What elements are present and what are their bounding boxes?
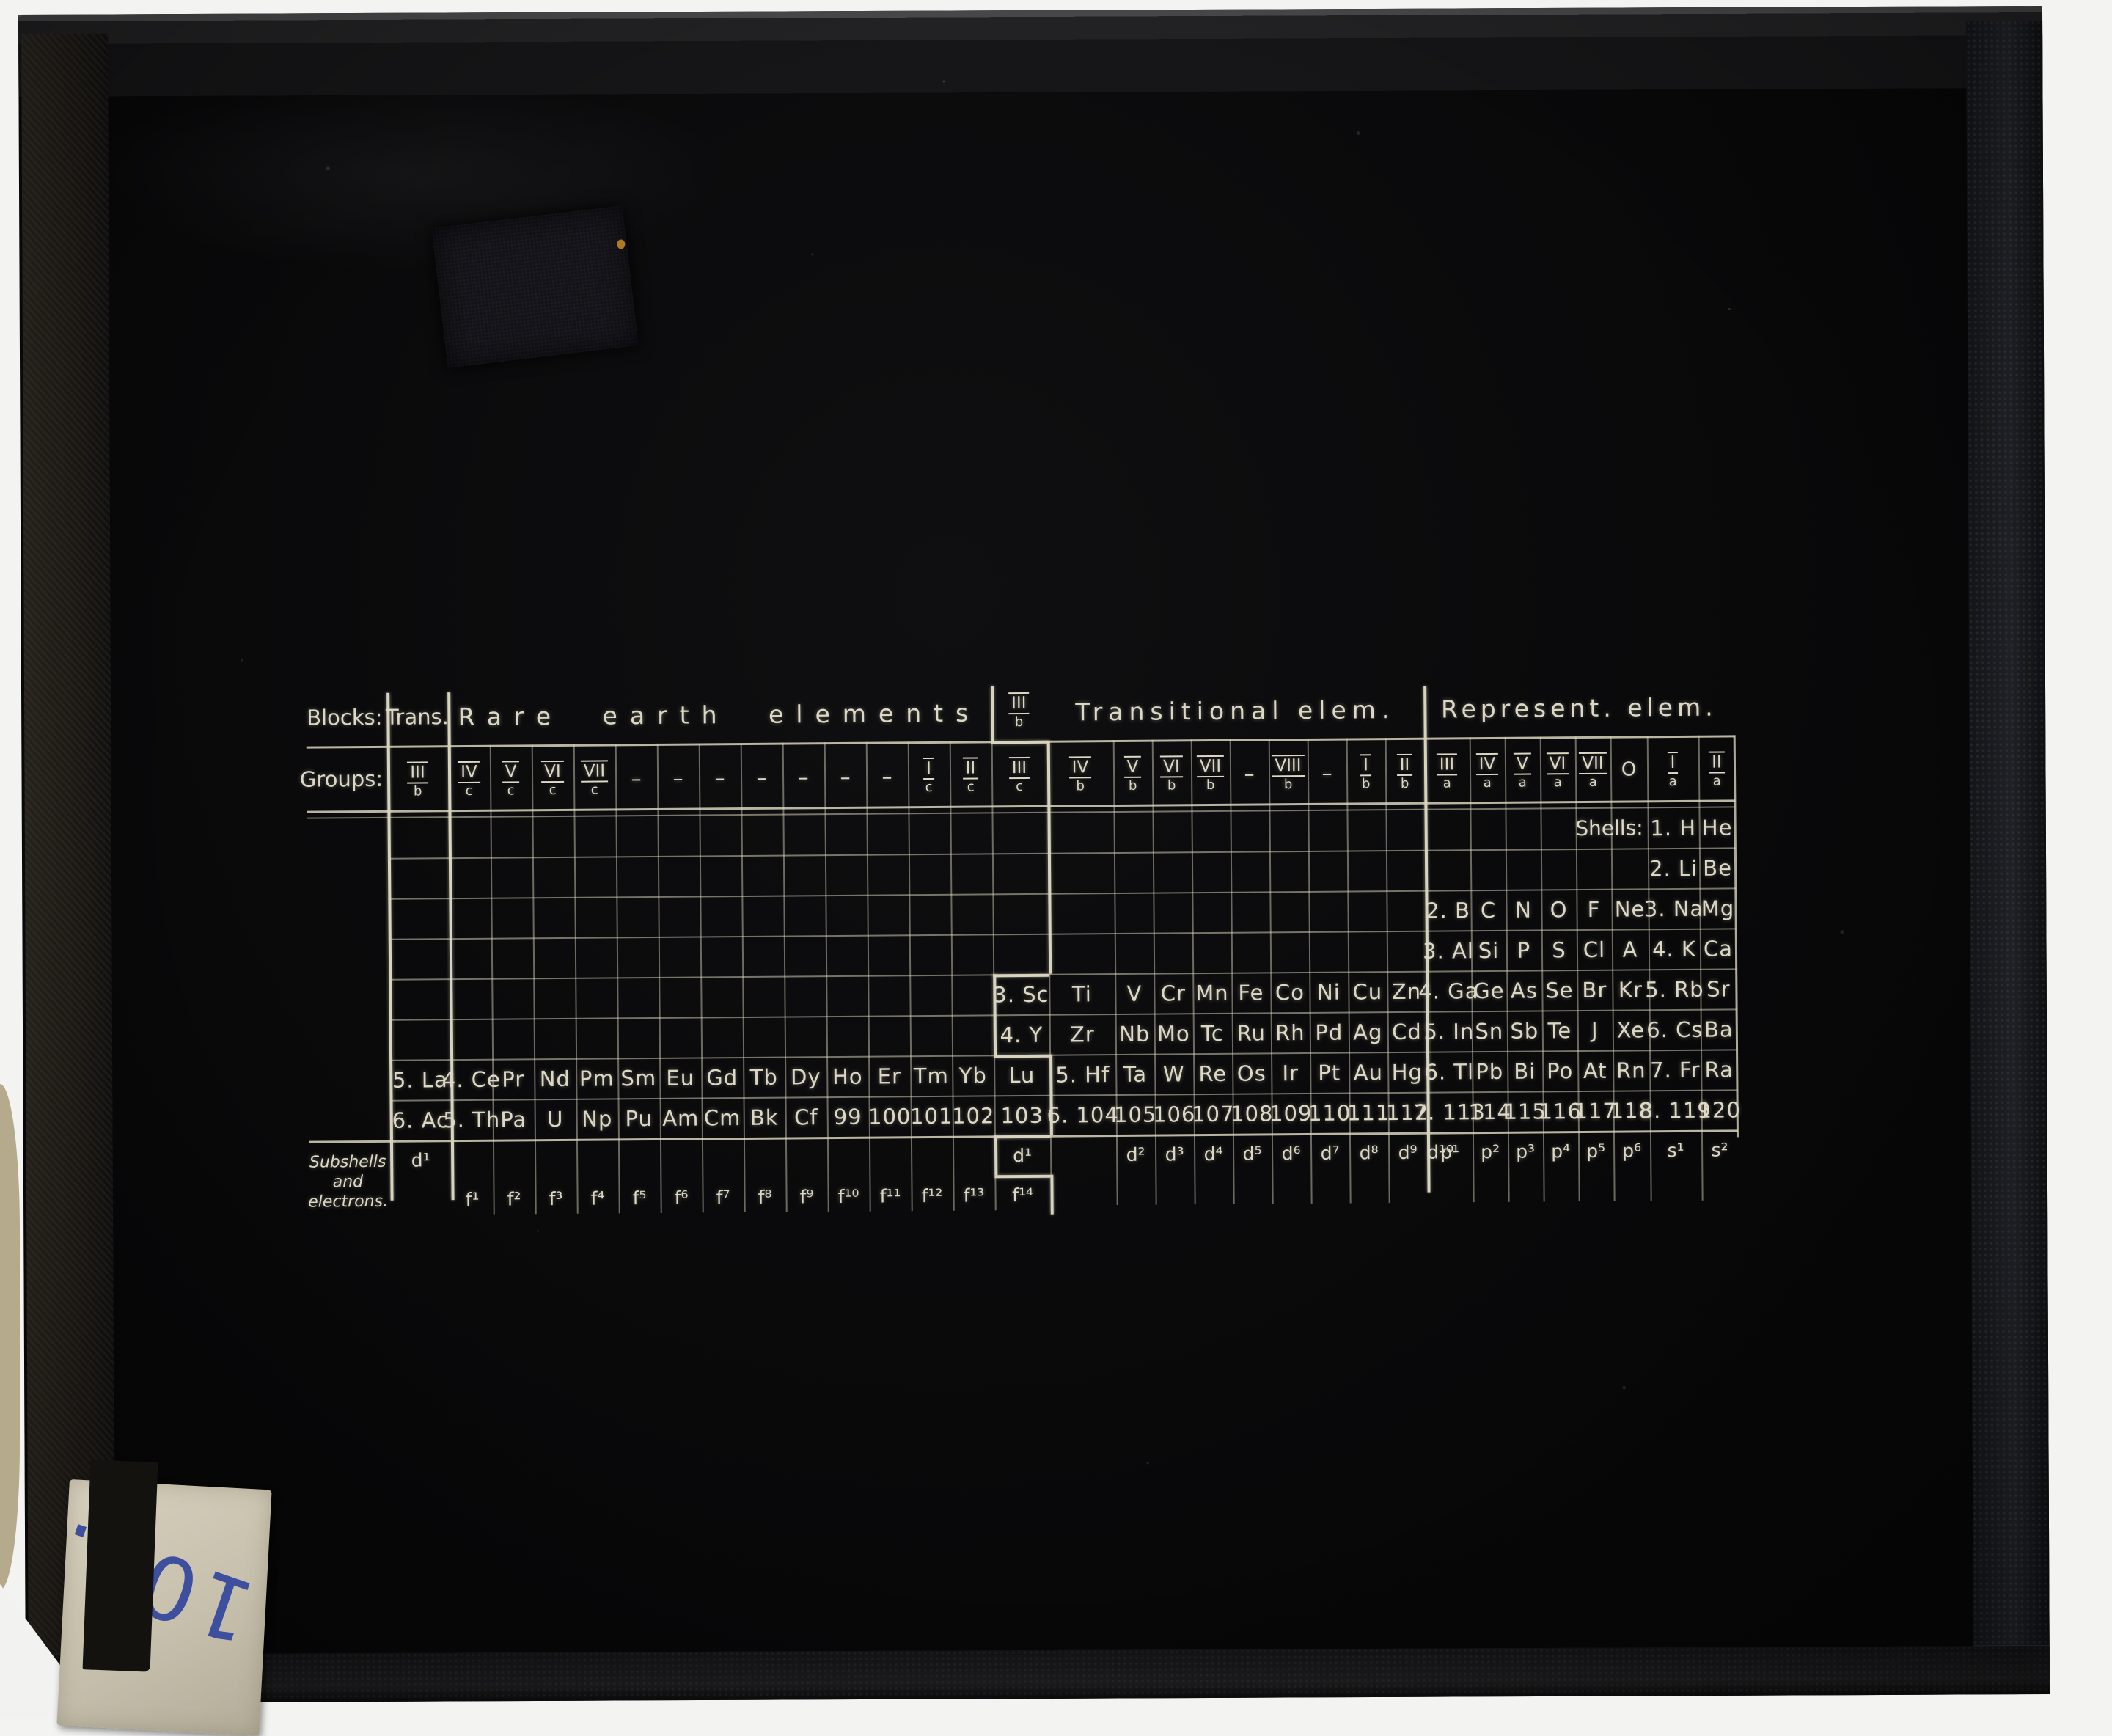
group-cell: – <box>741 743 783 812</box>
subshell-cell: s² <box>1701 1129 1738 1169</box>
element-cell: F <box>1576 889 1611 929</box>
element-cell: Sm <box>617 1058 659 1098</box>
groups-label: Groups: <box>307 746 384 813</box>
subshell-cell: p³ <box>1508 1131 1543 1171</box>
group-numeral: – <box>881 764 892 788</box>
group-cell: VIIb <box>1191 739 1231 808</box>
element-cell: Bi <box>1507 1050 1542 1091</box>
gridline <box>1050 1175 1053 1215</box>
element-cell: 100 <box>869 1096 911 1136</box>
element-cell: 2. B <box>1425 890 1470 930</box>
subshell-cell: d⁵ <box>1233 1133 1272 1173</box>
tape-over-sticker <box>83 1460 158 1671</box>
group-numeral: – <box>1321 761 1332 785</box>
element-cell: 99 <box>827 1096 869 1137</box>
group-numeral: IV <box>458 761 480 783</box>
element-cell: 105 <box>1115 1094 1154 1135</box>
element-cell: C <box>1470 890 1506 930</box>
element-cell: Mo <box>1154 1013 1193 1053</box>
group-numeral: III <box>407 761 428 783</box>
subshells-label-line: and <box>333 1172 364 1192</box>
element-cell: 116 <box>1542 1091 1577 1131</box>
group-cell: IIb <box>1385 738 1425 807</box>
group-letter: a <box>1589 776 1597 789</box>
group-letter: c <box>1016 780 1023 794</box>
element-cell: Eu <box>659 1057 701 1097</box>
element-cell: Kr <box>1612 969 1649 1009</box>
group-numeral: – <box>840 764 850 788</box>
group-cell: VIc <box>532 744 574 813</box>
group-numeral: O <box>1620 760 1638 781</box>
element-cell: Pb <box>1472 1051 1507 1091</box>
element-cell: 5. Th <box>451 1099 493 1140</box>
subshell-cell: p⁵ <box>1578 1131 1613 1171</box>
element-cell: Cl <box>1577 929 1612 970</box>
group-numeral: VIII <box>1272 755 1304 777</box>
group-numeral: – <box>672 766 683 790</box>
shells-label: Shells: <box>1540 807 1643 849</box>
element-cell: Yb <box>952 1055 994 1095</box>
element-cell: 2. Li <box>1648 848 1699 889</box>
subshell-cell: p⁶ <box>1613 1130 1650 1170</box>
group-cell: Va <box>1505 736 1541 805</box>
subshell-cell: p⁴ <box>1543 1131 1578 1171</box>
element-cell: 115 <box>1507 1091 1542 1131</box>
group-numeral: V <box>1123 756 1141 778</box>
group-cell: VIa <box>1540 736 1576 805</box>
block-title-represent: Represent. elem. <box>1423 680 1735 735</box>
element-cell: Pu <box>618 1098 660 1138</box>
element-cell: 5. In <box>1426 1011 1472 1051</box>
element-cell: 108 <box>1232 1093 1271 1133</box>
group-numeral: IV <box>1476 753 1499 775</box>
group-cell: – <box>657 743 700 812</box>
element-cell: Cf <box>785 1096 827 1137</box>
subshell-cell: f¹⁴ <box>994 1175 1050 1215</box>
group-letter: b <box>1076 780 1085 793</box>
element-cell: Er <box>868 1055 910 1096</box>
element-cell: Ra <box>1701 1049 1737 1089</box>
group-cell: IIIc <box>991 741 1048 810</box>
element-cell: Ca <box>1700 928 1737 968</box>
group-letter: b <box>1401 777 1409 791</box>
element-cell: V <box>1115 973 1154 1014</box>
element-cell: Rh <box>1271 1012 1310 1052</box>
group-cell: IIc <box>950 741 992 810</box>
element-cell: Cr <box>1154 973 1192 1013</box>
group-cell: Vc <box>490 744 532 813</box>
element-cell: 109 <box>1271 1093 1310 1133</box>
subshell-cell: d⁴ <box>1194 1134 1233 1173</box>
group-letter: a <box>1669 775 1677 788</box>
subshell-cell: d⁷ <box>1310 1133 1349 1173</box>
group-numeral: VII <box>1579 752 1607 774</box>
subshell-cell: d⁶ <box>1272 1133 1310 1173</box>
element-cell: Ti <box>1049 973 1115 1014</box>
element-cell: 3. Na <box>1648 888 1699 929</box>
element-cell: 6. 104 <box>1049 1094 1115 1135</box>
element-cell: Ru <box>1232 1012 1271 1052</box>
element-cell: 8. 119 <box>1649 1090 1701 1131</box>
group-numeral: – <box>631 766 641 791</box>
subshell-cell: f⁷ <box>702 1177 744 1217</box>
subshell-cell: d⁸ <box>1349 1132 1388 1172</box>
element-cell: Co <box>1270 972 1309 1012</box>
group-numeral: – <box>714 766 725 790</box>
element-cell: N <box>1506 889 1541 929</box>
subshell-cell: f¹ <box>451 1179 493 1219</box>
element-cell: Pt <box>1310 1052 1349 1093</box>
group-letter: c <box>591 784 598 797</box>
element-cell: 102 <box>952 1095 994 1135</box>
group-cell: IVc <box>448 745 491 814</box>
element-cell: Mn <box>1192 973 1231 1013</box>
subshell-cell: f¹¹ <box>869 1176 911 1215</box>
group-letter: b <box>414 785 422 798</box>
element-cell: At <box>1577 1050 1613 1091</box>
group-cell: – <box>1308 739 1347 807</box>
group-cell: – <box>866 741 909 810</box>
element-cell: Be <box>1699 847 1736 887</box>
group-numeral: III <box>1437 753 1458 775</box>
element-cell: 6. Tl <box>1426 1051 1472 1091</box>
group-numeral: V <box>1514 752 1531 774</box>
element-cell: 4. Ce <box>450 1059 492 1099</box>
subshell-cell: f² <box>493 1179 535 1218</box>
subshells-label-line: Subshells <box>309 1151 386 1172</box>
subshell-cell: f⁸ <box>744 1177 785 1217</box>
subshell-cell: s¹ <box>1650 1130 1701 1171</box>
group-letter: c <box>466 785 473 798</box>
element-cell: 110 <box>1310 1093 1349 1133</box>
element-cell: Ni <box>1309 972 1348 1012</box>
group-letter: a <box>1443 777 1451 790</box>
element-cell: 3. Sc <box>993 974 1049 1015</box>
group-letter: b <box>1015 716 1024 729</box>
group-numeral: – <box>1244 761 1254 785</box>
element-cell: Lu <box>994 1055 1049 1096</box>
element-cell: Os <box>1232 1052 1271 1093</box>
group-letter: a <box>1554 776 1562 789</box>
element-cell: Mg <box>1699 887 1736 928</box>
element-cell: Sn <box>1472 1011 1507 1051</box>
element-cell: He <box>1698 807 1735 847</box>
group-numeral: – <box>798 765 808 789</box>
group-cell: O <box>1610 736 1648 805</box>
element-cell: Ta <box>1115 1054 1154 1094</box>
element-cell: Nd <box>534 1058 576 1099</box>
subshell-cell: f¹³ <box>953 1175 994 1215</box>
group-cell: IVa <box>1470 737 1506 806</box>
group-numeral: V <box>502 761 520 783</box>
block-title-rare-earth: Rare earth elements <box>447 686 991 743</box>
subshell-cell: f¹⁰ <box>827 1176 869 1216</box>
group-cell: – <box>615 744 658 813</box>
group-letter: b <box>1167 779 1176 792</box>
element-cell: Tc <box>1193 1013 1232 1053</box>
element-cell: 4. K <box>1649 929 1700 970</box>
subshell-cell: p² <box>1473 1132 1508 1171</box>
element-cell: Po <box>1542 1050 1577 1091</box>
group-letter: b <box>1284 778 1293 791</box>
subshell-cell: d⁹ <box>1388 1132 1427 1172</box>
group-cell: IIIa <box>1424 737 1470 806</box>
element-cell: 101 <box>911 1096 953 1136</box>
element-cell: Np <box>576 1098 618 1138</box>
element-cell: P <box>1506 929 1541 970</box>
element-cell: Sb <box>1507 1010 1542 1050</box>
element-cell: O <box>1541 889 1576 929</box>
element-cell: Te <box>1542 1010 1577 1050</box>
group-letter: b <box>1206 779 1215 792</box>
group-numeral: II <box>963 757 979 779</box>
element-cell: 111 <box>1349 1092 1387 1132</box>
group-numeral: VII <box>1197 755 1225 777</box>
group-numeral: I <box>1360 754 1371 776</box>
group-letter: a <box>1484 777 1492 790</box>
group-numeral: IV <box>1069 756 1092 778</box>
group-numeral: VI <box>1547 752 1569 774</box>
element-cell: 3. Al <box>1426 930 1471 970</box>
subshell-cell: f⁴ <box>576 1178 618 1217</box>
element-cell: 6. Cs <box>1649 1009 1701 1050</box>
group-letter: a <box>1519 777 1527 790</box>
element-cell: Xe <box>1613 1009 1649 1050</box>
paper-sliver <box>0 1084 20 1590</box>
element-cell: 114 <box>1472 1091 1507 1132</box>
group-letter: c <box>967 781 975 794</box>
element-cell: Ba <box>1701 1008 1737 1049</box>
element-cell: Nb <box>1115 1014 1154 1054</box>
element-cell: 4. Ga <box>1426 970 1471 1011</box>
element-cell: A <box>1612 929 1649 969</box>
group-numeral: – <box>756 765 766 789</box>
subshell-cell: d¹ <box>390 1140 451 1180</box>
subshell-cell: f⁵ <box>618 1178 660 1217</box>
periodic-table-diagram: Blocks:Trans.Rare earth elementsIIIbTran… <box>306 676 1739 1234</box>
element-cell: Ho <box>826 1056 868 1096</box>
element-cell: Pm <box>576 1058 617 1098</box>
element-cell: J <box>1577 1010 1613 1050</box>
block-title-transitional: Transitional elem. <box>1046 683 1424 739</box>
element-cell: W <box>1154 1053 1193 1094</box>
subshell-cell: d³ <box>1155 1134 1194 1173</box>
element-cell: Sr <box>1700 968 1737 1008</box>
group-numeral: VII <box>581 760 609 782</box>
element-cell: Pa <box>493 1099 535 1139</box>
element-cell: Gd <box>701 1057 743 1097</box>
subshell-cell: f³ <box>535 1179 576 1218</box>
element-cell: Hg <box>1387 1052 1426 1092</box>
group-letter: c <box>507 784 515 797</box>
group-cell: VIb <box>1152 739 1192 808</box>
subshell-cell: p¹ <box>1427 1132 1473 1171</box>
group-letter: c <box>549 784 557 797</box>
element-cell: Zr <box>1049 1014 1115 1055</box>
group-numeral: III <box>1009 757 1030 779</box>
gridline <box>388 847 1736 859</box>
element-cell: Bk <box>744 1097 785 1138</box>
element-cell: 4. Y <box>994 1014 1049 1055</box>
element-cell: 7. 113 <box>1426 1091 1472 1132</box>
group-cell: – <box>782 742 825 811</box>
group-cell: Ia <box>1647 736 1699 805</box>
element-cell: Ag <box>1349 1011 1387 1052</box>
element-cell: 7. Fr <box>1649 1050 1701 1091</box>
group-numeral: II <box>1397 754 1413 776</box>
group-cell: Ic <box>908 741 950 810</box>
subshells-label: Subshellsandelectrons. <box>309 1146 386 1217</box>
element-cell: S <box>1541 929 1577 970</box>
group-cell: VIIc <box>573 744 616 813</box>
group-cell: IVb <box>1047 740 1114 810</box>
group-cell: – <box>699 743 741 812</box>
group-numeral: II <box>1709 751 1725 773</box>
element-cell: 103 <box>994 1095 1049 1136</box>
subshell-cell: f⁹ <box>785 1176 827 1216</box>
element-cell: 120 <box>1701 1089 1737 1129</box>
group-cell: VIIa <box>1575 736 1611 805</box>
element-cell: Pd <box>1310 1012 1349 1052</box>
group-cell: IIIb <box>387 745 449 815</box>
subshell-cell: f⁶ <box>660 1177 702 1217</box>
group-letter: a <box>1713 775 1721 788</box>
element-cell: 5. Rb <box>1649 969 1700 1010</box>
element-cell: 5. Hf <box>1049 1054 1115 1095</box>
element-cell: Se <box>1541 970 1577 1010</box>
element-cell: Au <box>1349 1052 1387 1092</box>
element-cell: 117 <box>1577 1091 1613 1131</box>
group-cell: IIa <box>1698 735 1736 804</box>
element-cell: Si <box>1471 930 1506 970</box>
group-cell: – <box>1230 739 1269 807</box>
element-cell: U <box>535 1099 576 1139</box>
group-numeral: I <box>923 758 934 780</box>
blocks-label: Blocks: <box>306 691 383 744</box>
element-cell: Ne <box>1611 888 1648 929</box>
element-cell: Cd <box>1387 1011 1426 1052</box>
element-cell: Am <box>660 1097 702 1138</box>
element-cell: Fe <box>1231 972 1270 1012</box>
element-cell: Tb <box>743 1057 785 1097</box>
group-cell: Vb <box>1113 740 1153 809</box>
element-cell: Dy <box>785 1056 826 1096</box>
element-cell: Ir <box>1271 1052 1310 1093</box>
element-cell: Tm <box>910 1055 952 1096</box>
element-cell: Cu <box>1348 971 1387 1011</box>
element-cell: 106 <box>1154 1094 1193 1134</box>
subshell-cell: d² <box>1116 1135 1155 1174</box>
subshell-cell: f¹² <box>911 1176 953 1215</box>
group-letter: b <box>1129 780 1137 793</box>
element-cell: Br <box>1577 970 1612 1010</box>
group-numeral: VI <box>541 761 564 783</box>
element-cell: Re <box>1193 1053 1232 1094</box>
group-cell: Ib <box>1346 738 1386 807</box>
subshells-label-line: electrons. <box>308 1191 388 1212</box>
element-cell: Rn <box>1613 1050 1649 1090</box>
block-title-trans: Trans. <box>386 690 448 744</box>
group-numeral: I <box>1667 752 1678 774</box>
element-cell: Pr <box>492 1058 534 1099</box>
element-cell: 6. Ac <box>390 1099 451 1140</box>
element-cell: Cm <box>702 1097 744 1138</box>
group-cell: – <box>824 742 867 811</box>
group-letter: c <box>925 781 933 794</box>
element-cell: As <box>1506 970 1541 1010</box>
group-numeral: III <box>1008 692 1030 714</box>
group-letter: b <box>1362 777 1371 791</box>
group-numeral: VI <box>1160 755 1183 777</box>
subshell-cell: d¹ <box>994 1135 1050 1176</box>
element-cell: 1. H <box>1647 807 1698 849</box>
group-cell: VIIIb <box>1269 739 1308 807</box>
element-cell: 107 <box>1193 1094 1232 1134</box>
block-label-IIIb: IIIb <box>991 684 1047 739</box>
element-cell: Ge <box>1471 970 1506 1011</box>
